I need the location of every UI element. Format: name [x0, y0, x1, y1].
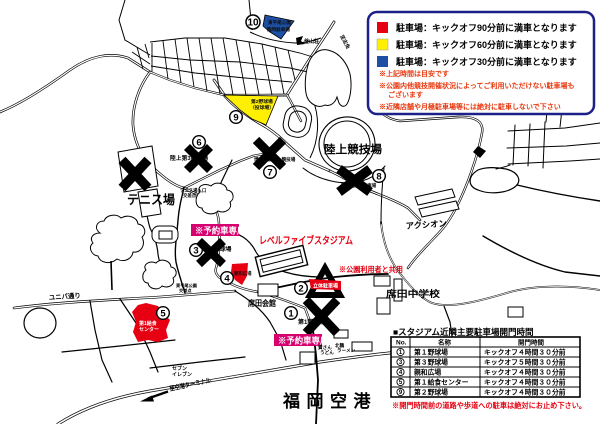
svg-text:ございます: ございます [388, 90, 423, 99]
svg-text:9: 9 [233, 112, 238, 123]
svg-text:親和広場: 親和広場 [234, 270, 252, 277]
svg-text:1: 1 [288, 308, 294, 319]
svg-text:テニス場: テニス場 [127, 192, 175, 207]
svg-text:7: 7 [267, 167, 272, 178]
svg-text:6: 6 [196, 137, 201, 148]
svg-text:※予約車専用: ※予約車専用 [195, 226, 245, 236]
svg-text:4: 4 [224, 273, 230, 284]
svg-text:キックオフ４時間３０分前: キックオフ４時間３０分前 [484, 348, 566, 357]
svg-text:駐車場：キックオフ60分前に満車となります: 駐車場：キックオフ60分前に満車となります [396, 39, 577, 50]
svg-text:駐車場：キックオフ90分前に満車となります: 駐車場：キックオフ90分前に満車となります [396, 22, 577, 33]
svg-text:キックオフ４時間３０分前: キックオフ４時間３０分前 [484, 388, 566, 397]
svg-text:名称: 名称 [438, 338, 452, 347]
svg-text:※予約車専用: ※予約車専用 [278, 336, 328, 346]
svg-text:キックオフ４時間３０分前: キックオフ４時間３０分前 [484, 378, 566, 387]
svg-text:2: 2 [298, 283, 303, 294]
svg-text:■スタジアム近隣主要駐車場開門時間: ■スタジアム近隣主要駐車場開門時間 [393, 327, 534, 337]
svg-text:駐車場：キックオフ30分前に満車となります: 駐車場：キックオフ30分前に満車となります [396, 56, 577, 67]
svg-text:5: 5 [160, 308, 166, 319]
svg-text:10: 10 [247, 18, 259, 29]
svg-text:席田中学校: 席田中学校 [386, 288, 441, 299]
svg-text:開門時間: 開門時間 [518, 338, 545, 347]
svg-text:第１給食センター: 第１給食センター [414, 378, 469, 387]
svg-text:セブン: セブン [172, 365, 187, 372]
svg-text:第２野球場: 第２野球場 [414, 388, 448, 397]
svg-text:交差点: 交差点 [183, 192, 197, 199]
svg-text:※公園利用者と共用: ※公園利用者と共用 [339, 264, 403, 274]
svg-text:東平尾公園: 東平尾公園 [268, 19, 291, 26]
svg-text:福岡空港: 福岡空港 [282, 391, 377, 411]
svg-text:No.: No. [396, 340, 407, 347]
svg-text:レベルファイブスタジアム: レベルファイブスタジアム [259, 234, 353, 247]
svg-text:立体駐車場: 立体駐車場 [313, 283, 338, 290]
svg-text:※近隣店舗や月極駐車場等には絶対に駐車しないで下さい: ※近隣店舗や月極駐車場等には絶対に駐車しないで下さい [379, 102, 561, 111]
svg-text:臨時駐車場: 臨時駐車場 [267, 26, 290, 33]
svg-text:博多の森陸上競技場: 博多の森陸上競技場 [254, 156, 296, 163]
svg-text:イレブン: イレブン [172, 371, 192, 378]
svg-text:キックオフ４時間３０分前: キックオフ４時間３０分前 [484, 368, 566, 377]
svg-text:※公園内他競技開催状況によってご利用いただけない駐車場も: ※公園内他競技開催状況によってご利用いただけない駐車場も [379, 81, 574, 90]
svg-text:※開門時間前の道路や歩道への駐車は絶対にお止め下さい。: ※開門時間前の道路や歩道への駐車は絶対にお止め下さい。 [392, 401, 586, 410]
svg-text:交差点: 交差点 [179, 287, 192, 294]
svg-text:第３野球場: 第３野球場 [414, 358, 448, 367]
svg-text:釜山荘: 釜山荘 [303, 38, 319, 45]
svg-text:8: 8 [376, 171, 381, 182]
svg-text:センター: センター [139, 326, 159, 333]
svg-text:陸上競技場駐車場: 陸上競技場駐車場 [341, 182, 377, 189]
svg-text:陸上競技場: 陸上競技場 [324, 142, 382, 156]
svg-text:（投球場）: （投球場） [250, 104, 274, 111]
svg-text:※上記時間は目安です: ※上記時間は目安です [379, 69, 449, 78]
svg-text:席田会館: 席田会館 [248, 298, 276, 308]
svg-text:親和広場: 親和広場 [414, 368, 441, 377]
svg-text:3: 3 [193, 245, 198, 256]
svg-text:キックオフ５時間３０分前: キックオフ５時間３０分前 [484, 358, 566, 367]
svg-text:第1給食: 第1給食 [139, 320, 158, 327]
svg-text:第2野球場: 第2野球場 [251, 98, 273, 105]
svg-text:うどん: うどん [320, 349, 334, 356]
svg-text:第１野球場: 第１野球場 [414, 348, 448, 357]
